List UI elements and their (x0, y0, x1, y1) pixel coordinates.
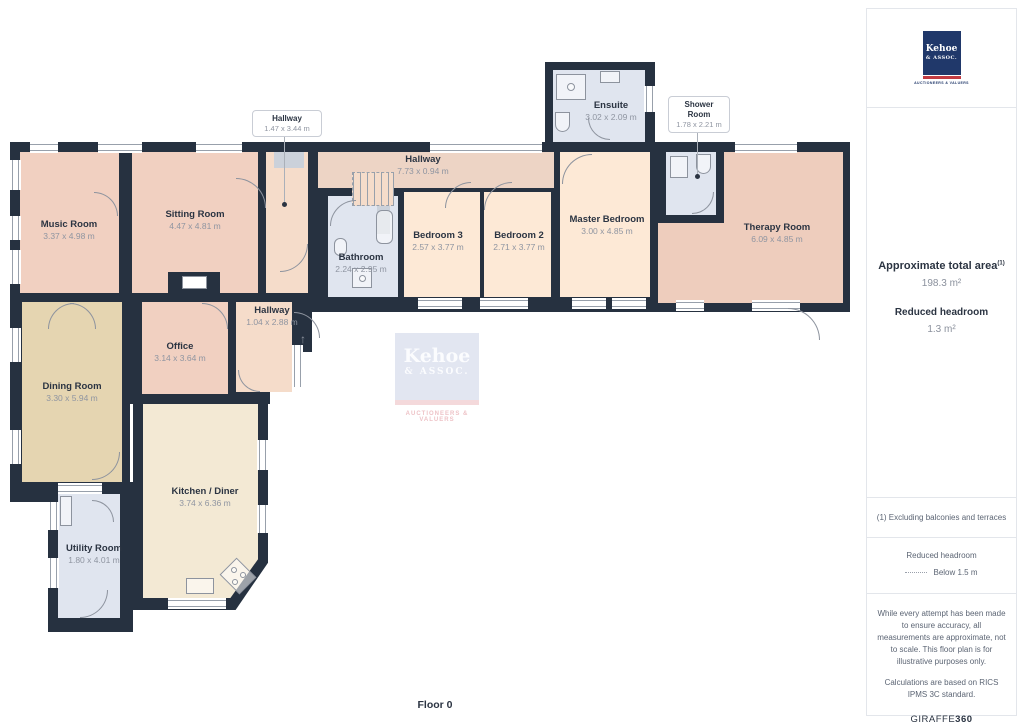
room-therapy-floor (724, 152, 843, 303)
fixture-sink (600, 71, 620, 83)
window (644, 86, 655, 112)
window (572, 298, 606, 309)
window (257, 505, 268, 533)
total-area-title: Approximate total area(1) (867, 260, 1016, 272)
watermark-box: Kehoe & ASSOC. (395, 333, 479, 405)
disclaimer-text-1: While every attempt has been made to ens… (877, 608, 1006, 668)
callout-leader-dot (695, 174, 700, 179)
window (430, 142, 542, 153)
fixture-drain (359, 275, 366, 282)
sidebar-legend: Reduced headroom Below 1.5 m (867, 538, 1016, 594)
fixture-toilet (555, 112, 570, 132)
callout-shower-room: Shower Room 1.78 x 2.21 m (668, 96, 730, 133)
window (257, 440, 268, 470)
floorplan-page: ↑ Music Room 3.37 x 4.98 m Sitting Room … (0, 0, 1024, 724)
fixture-burner (232, 579, 238, 585)
sidebar-logo-section: Kehoe & ASSOC. AUCTIONEERS & VALUERS (867, 9, 1016, 108)
window (10, 430, 21, 464)
disclaimer-text-2: Calculations are based on RICS IPMS 3C s… (877, 677, 1006, 701)
watermark-logo: Kehoe & ASSOC. AUCTIONEERS & VALUERS (395, 333, 479, 423)
window (48, 502, 59, 530)
door-arc (788, 308, 820, 340)
window (480, 298, 528, 309)
callout-leader-line (697, 128, 698, 176)
window (10, 216, 21, 240)
sidebar-disclaimer: While every attempt has been made to ens… (867, 594, 1016, 717)
agency-logo-box: Kehoe & ASSOC. (923, 31, 961, 75)
fixture-toilet (696, 154, 711, 174)
callout-hallway-top: Hallway 1.47 x 3.44 m (252, 110, 322, 137)
fixture-burner (240, 572, 246, 578)
fixture-drain (567, 83, 575, 91)
floor-label: Floor 0 (330, 699, 540, 711)
window (58, 483, 102, 494)
window (10, 160, 21, 190)
sidebar-area-section: Approximate total area(1) 198.3 m² Reduc… (867, 108, 1016, 498)
fixture-bath (376, 210, 393, 244)
reduced-headroom-value: 1.3 m² (867, 324, 1016, 335)
fixture-fireplace-opening (182, 276, 207, 289)
window (418, 298, 462, 309)
fixture-sink (670, 156, 688, 178)
legend-row: Below 1.5 m (867, 568, 1016, 577)
legend-title: Reduced headroom (867, 551, 1016, 560)
watermark-red-bar (395, 400, 479, 405)
fixture-counter (60, 496, 72, 526)
window (735, 142, 797, 153)
stairs (352, 172, 394, 206)
total-area-value: 198.3 m² (867, 278, 1016, 289)
window (48, 558, 59, 588)
fixture-sink (334, 238, 347, 256)
window (30, 142, 58, 153)
dotted-line-icon (905, 572, 927, 573)
sidebar-footnote: (1) Excluding balconies and terraces (867, 498, 1016, 538)
window (168, 598, 226, 609)
window (292, 345, 303, 387)
fixture-kitchen-sink (186, 578, 214, 594)
reduced-headroom-title: Reduced headroom (867, 307, 1016, 318)
room-hallway-top-floor (266, 152, 308, 293)
window (612, 298, 646, 309)
entrance-arrow-icon: ↑ (300, 332, 306, 346)
agency-logo-red-bar (923, 76, 961, 79)
chimney-block (274, 152, 304, 168)
room-music-room-floor (20, 152, 119, 293)
room-therapy-floor (658, 223, 724, 303)
door-arc (294, 312, 320, 338)
callout-leader-line (284, 136, 285, 204)
window (98, 142, 142, 153)
giraffe360-brand: GIRAFFE360 (877, 713, 1006, 724)
info-sidebar: Kehoe & ASSOC. AUCTIONEERS & VALUERS App… (866, 8, 1017, 716)
window (10, 250, 21, 284)
window (10, 328, 21, 362)
window (196, 142, 242, 153)
agency-logo: Kehoe & ASSOC. AUCTIONEERS & VALUERS (914, 31, 969, 85)
callout-leader-dot (282, 202, 287, 207)
window (676, 300, 704, 311)
